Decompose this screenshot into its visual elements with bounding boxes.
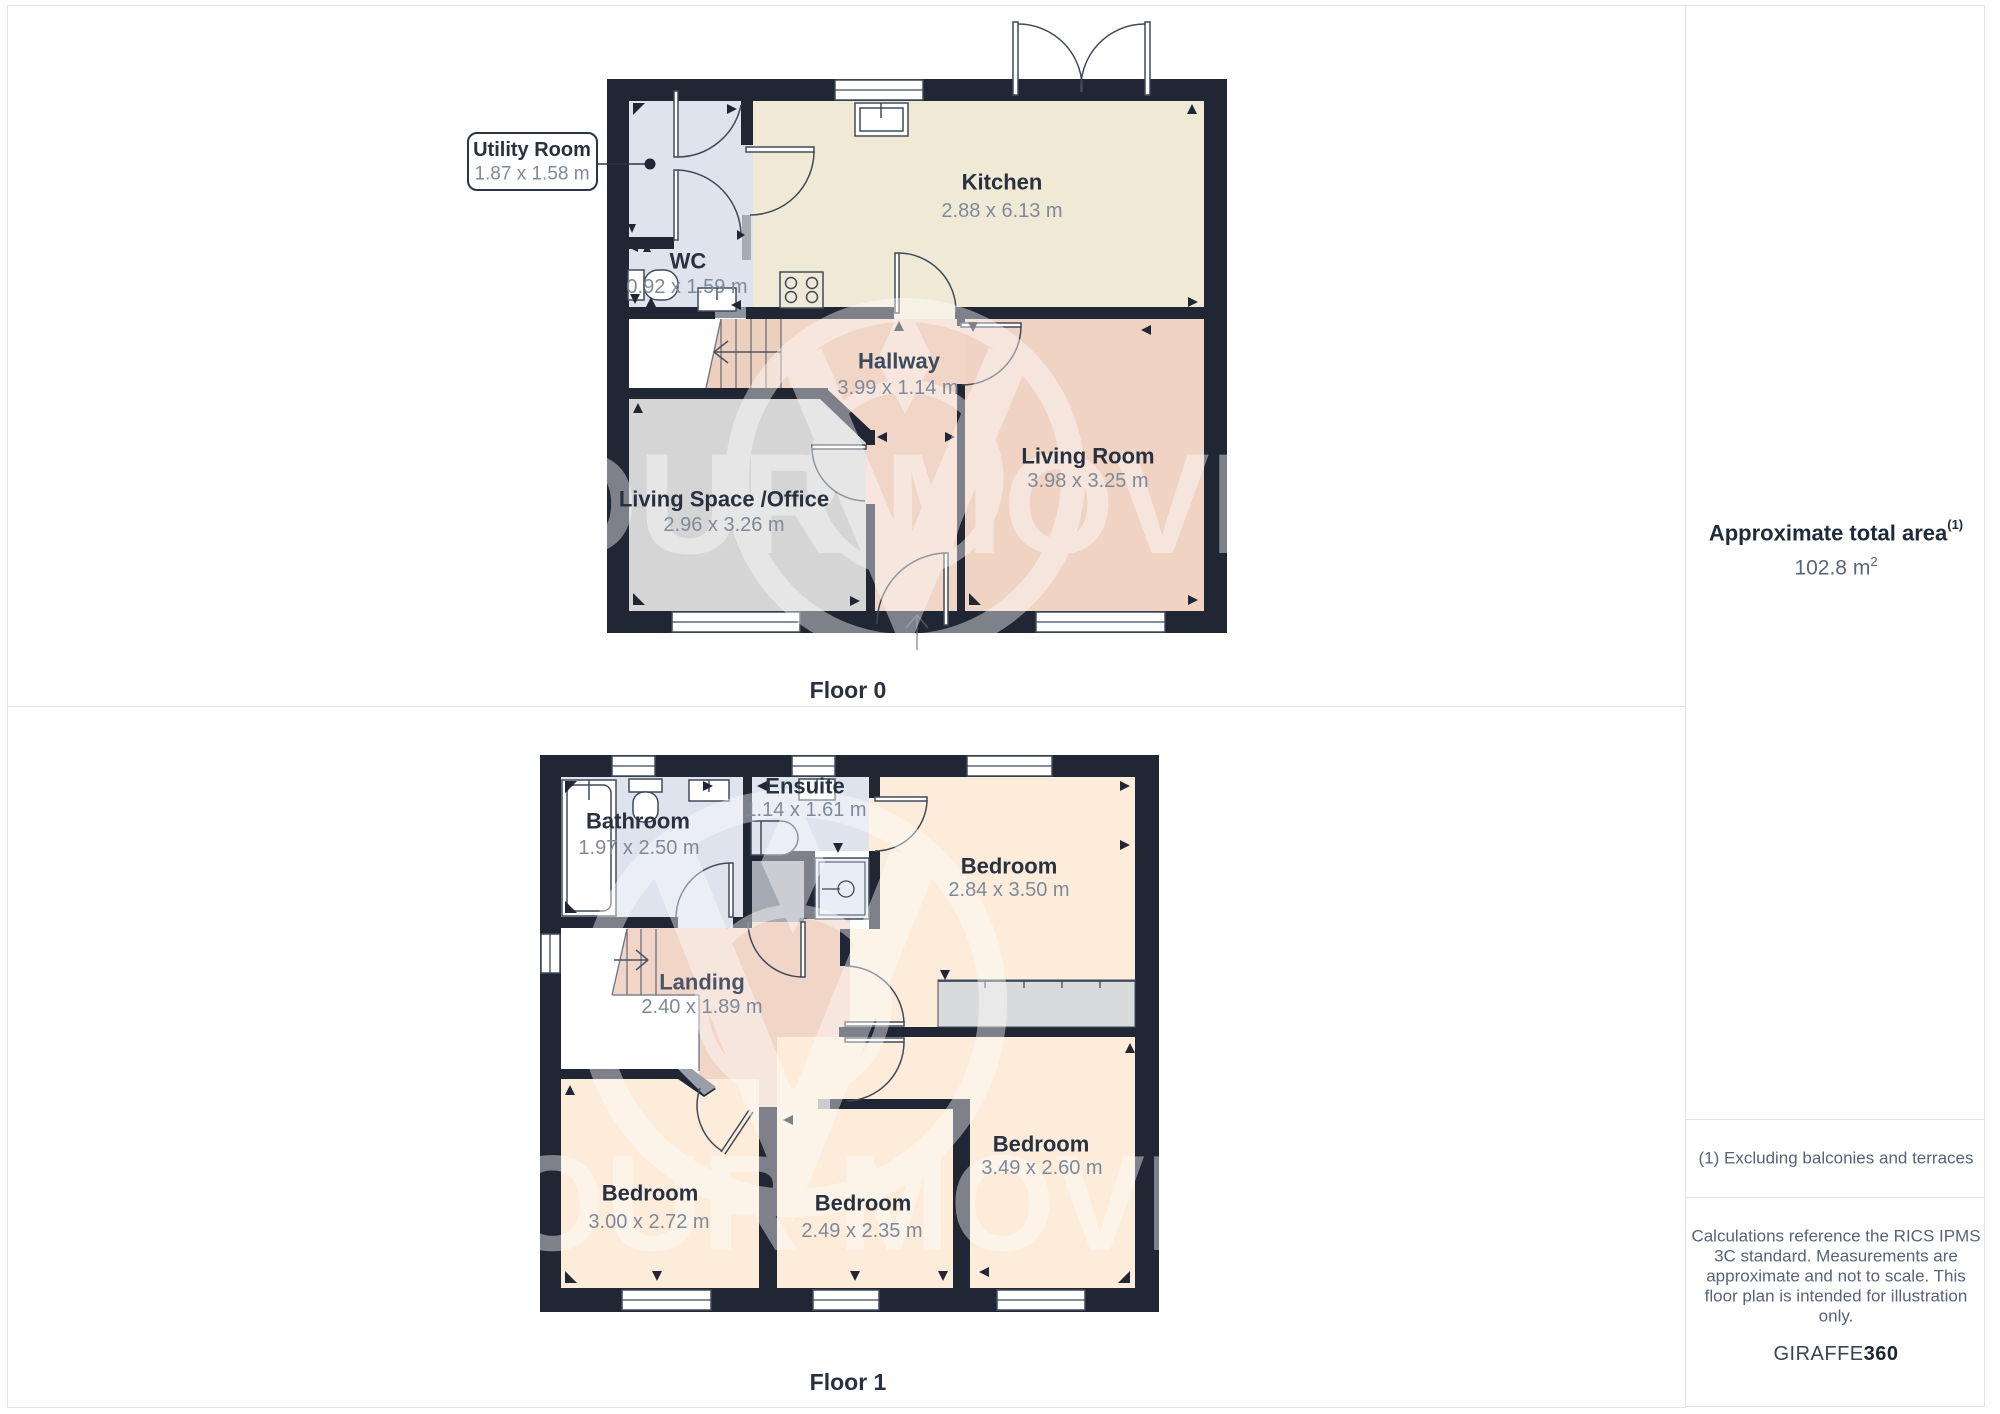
svg-text:Utility Room: Utility Room	[473, 139, 591, 161]
svg-text:3.00 x 2.72 m: 3.00 x 2.72 m	[588, 1211, 709, 1233]
svg-text:only.: only.	[1819, 1307, 1854, 1326]
svg-text:0.92 x 1.59 m: 0.92 x 1.59 m	[626, 276, 747, 298]
svg-text:Bedroom: Bedroom	[602, 1181, 699, 1206]
svg-text:Hallway: Hallway	[858, 349, 941, 374]
svg-text:Ensuite: Ensuite	[765, 774, 844, 799]
svg-text:Bedroom: Bedroom	[993, 1132, 1090, 1157]
svg-text:102.8 m2: 102.8 m2	[1794, 554, 1877, 580]
svg-text:1.14 x 1.61 m: 1.14 x 1.61 m	[745, 799, 866, 821]
svg-text:2.40 x 1.89 m: 2.40 x 1.89 m	[641, 996, 762, 1018]
svg-text:approximate and not to scale.: approximate and not to scale. This	[1706, 1267, 1966, 1286]
svg-text:Floor 1: Floor 1	[810, 1369, 887, 1395]
svg-text:3.98 x 3.25 m: 3.98 x 3.25 m	[1027, 470, 1148, 492]
svg-text:floor plan is intended for ill: floor plan is intended for illustration	[1705, 1287, 1968, 1306]
svg-text:3.49 x 2.60 m: 3.49 x 2.60 m	[981, 1157, 1102, 1179]
svg-text:2.84 x 3.50 m: 2.84 x 3.50 m	[948, 879, 1069, 901]
svg-text:WC: WC	[670, 249, 707, 274]
svg-text:1.87 x 1.58 m: 1.87 x 1.58 m	[474, 164, 589, 185]
svg-text:Living Space /Office: Living Space /Office	[619, 487, 829, 512]
svg-text:Kitchen: Kitchen	[962, 170, 1043, 195]
svg-text:Bedroom: Bedroom	[961, 854, 1058, 879]
svg-text:3.99 x 1.14 m: 3.99 x 1.14 m	[837, 377, 958, 399]
svg-text:3C standard. Measurements are: 3C standard. Measurements are	[1714, 1247, 1958, 1266]
svg-text:GIRAFFE360: GIRAFFE360	[1773, 1343, 1898, 1365]
svg-text:Calculations reference the RIC: Calculations reference the RICS IPMS	[1691, 1227, 1980, 1246]
svg-text:2.96 x 3.26 m: 2.96 x 3.26 m	[663, 514, 784, 536]
svg-text:2.88 x 6.13 m: 2.88 x 6.13 m	[941, 200, 1062, 222]
svg-text:Bathroom: Bathroom	[586, 809, 690, 834]
svg-text:Living Room: Living Room	[1021, 444, 1154, 469]
svg-text:2.49 x 2.35 m: 2.49 x 2.35 m	[801, 1220, 922, 1242]
svg-text:Approximate total area(1): Approximate total area(1)	[1709, 517, 1963, 546]
svg-text:1.97 x 2.50 m: 1.97 x 2.50 m	[578, 837, 699, 859]
svg-text:(1) Excluding balconies and te: (1) Excluding balconies and terraces	[1699, 1149, 1974, 1168]
svg-text:Floor 0: Floor 0	[810, 677, 887, 703]
svg-text:Landing: Landing	[659, 970, 745, 995]
svg-text:Bedroom: Bedroom	[815, 1191, 912, 1216]
